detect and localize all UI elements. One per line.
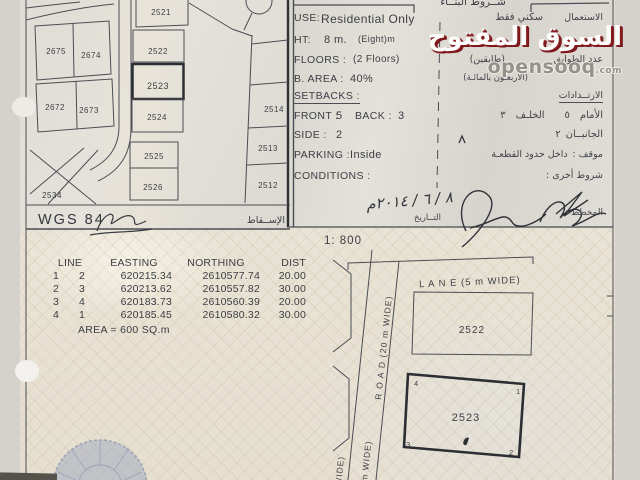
date-label: التــاريخ xyxy=(414,213,441,223)
plot-label-2534: 2534 xyxy=(42,191,62,200)
cell-easting: 620215.34 xyxy=(96,270,172,282)
parking-label: PARKING : xyxy=(294,149,350,161)
setbacks-label: SETBACKS : xyxy=(294,90,360,104)
corner-2: 2 xyxy=(509,448,513,457)
plot-label-2514: 2514 xyxy=(264,105,284,114)
punch-hole-reflection xyxy=(15,360,39,382)
row-setbacks: SETBACKS : الارتــدادات xyxy=(288,90,613,105)
plot-2522 xyxy=(133,30,184,62)
cell-dist: 20.00 xyxy=(260,270,306,282)
cell-from: 2 xyxy=(44,283,68,295)
watermark-domain: opensooq.com xyxy=(428,56,622,78)
krooki-photo: 2521 2522 2523 2524 2525 2526 2534 2675 … xyxy=(0,0,640,480)
detail-plot-2522-label: 2522 xyxy=(459,325,485,336)
conditions-label: CONDITIONS : xyxy=(294,170,371,182)
side-value: 2 xyxy=(336,129,343,141)
projection-label: الإســقاط xyxy=(247,215,285,226)
height-value: 8 m. xyxy=(324,34,347,46)
table-row: 2 3 620213.62 2610557.82 30.00 xyxy=(44,282,306,295)
plot-label-2674: 2674 xyxy=(81,51,101,60)
plot-label-2675: 2675 xyxy=(46,47,66,56)
road-partial-label: m WIDE) xyxy=(359,440,373,480)
header-northing: NORTHING xyxy=(172,257,260,269)
road-label: R O A D (20 m WIDE) xyxy=(373,295,394,400)
datum-label: WGS 84 xyxy=(38,212,105,228)
plot-label-2525: 2525 xyxy=(144,152,164,161)
table-row: 3 4 620183.73 2610560.39 20.00 xyxy=(44,295,306,308)
parking-value: Inside xyxy=(350,149,382,161)
cell-northing: 2610577.74 xyxy=(172,270,260,282)
cell-northing: 2610560.39 xyxy=(172,296,260,308)
cell-to: 3 xyxy=(68,283,96,295)
header-easting: EASTING xyxy=(96,257,172,269)
cell-easting: 620183.73 xyxy=(96,296,172,308)
edge-reflection xyxy=(12,97,36,117)
front-value: 5 xyxy=(336,110,343,122)
cell-easting: 620213.62 xyxy=(96,283,172,295)
header-dist: DIST xyxy=(260,257,306,269)
adjacent-plot-edge xyxy=(333,366,349,451)
plot-label-2521: 2521 xyxy=(151,8,171,17)
cell-easting: 620185.45 xyxy=(96,309,172,321)
back-value: 3 xyxy=(398,110,405,122)
corner-4: 4 xyxy=(414,379,418,388)
built-area-label: B. AREA : xyxy=(294,73,344,85)
area-total: AREA = 600 SQ.m xyxy=(44,324,306,336)
watermark-brand-arabic: السوق المفتوح xyxy=(428,22,622,52)
table-row: 4 1 620185.45 2610580.32 30.00 xyxy=(44,308,306,321)
adjacent-plot-edge xyxy=(333,260,351,352)
plot-label-2512: 2512 xyxy=(258,181,278,190)
row-conditions: CONDITIONS : شروط أخرى : xyxy=(288,170,613,185)
road-partial-label-2: WIDE) xyxy=(333,455,346,480)
planner-label: المخطط : xyxy=(565,208,603,218)
height-label: HT: xyxy=(294,34,311,46)
height-note: (Eight)m xyxy=(358,34,395,44)
plot-label-2673: 2673 xyxy=(79,106,99,115)
detail-plot-2522 xyxy=(412,292,533,355)
side-ar: الجانبــان ٢ xyxy=(555,129,603,140)
plot-label-2524: 2524 xyxy=(147,113,167,122)
built-area-value: 40% xyxy=(350,73,373,85)
header-line: LINE xyxy=(44,257,96,269)
watermark-tld: .com xyxy=(596,66,622,76)
opensooq-watermark: السوق المفتوح opensooq.com xyxy=(428,22,622,78)
road-curve xyxy=(26,2,80,8)
floors-value: (2 Floors) xyxy=(353,54,400,65)
cell-dist: 20.00 xyxy=(260,296,306,308)
cell-to: 4 xyxy=(68,296,96,308)
lane-label: L A N E (5 m WIDE) xyxy=(419,275,521,290)
table-header-row: LINE EASTING NORTHING DIST xyxy=(44,256,306,269)
coordinates-table: LINE EASTING NORTHING DIST 1 2 620215.34… xyxy=(44,256,306,336)
table-row: 1 2 620215.34 2610577.74 20.00 xyxy=(44,269,306,282)
cell-northing: 2610580.32 xyxy=(172,309,260,321)
watermark-brand-latin: opensooq xyxy=(488,56,596,78)
cell-to: 2 xyxy=(68,270,96,282)
plot-label-2526: 2526 xyxy=(143,183,163,192)
cell-northing: 2610557.82 xyxy=(172,283,260,295)
corner-1: 1 xyxy=(516,387,520,396)
cell-to: 1 xyxy=(68,309,96,321)
corner-3: 3 xyxy=(406,440,410,449)
floors-label: FLOORS : xyxy=(294,54,346,66)
plot-label-2672: 2672 xyxy=(45,103,65,112)
hand-mark-detail xyxy=(463,438,469,446)
cell-dist: 30.00 xyxy=(260,309,306,321)
conditions-ar: شروط أخرى : xyxy=(546,170,603,181)
plot-label-2522: 2522 xyxy=(148,47,168,56)
site-plan xyxy=(26,0,288,204)
north-arrow-icon xyxy=(246,0,272,14)
use-value: Residential Only xyxy=(321,12,415,26)
cell-from: 1 xyxy=(44,270,68,282)
row-parking: PARKING : Inside موقف : داخل حدود القطعـ… xyxy=(288,149,613,164)
lane-bracket xyxy=(348,257,533,270)
panel-header: شــروط البنــاء xyxy=(413,0,533,8)
use-label: USE: xyxy=(294,12,320,24)
cell-from: 4 xyxy=(44,309,68,321)
photo-corner-shadow xyxy=(0,472,57,480)
front-label: FRONT : xyxy=(294,110,339,122)
row-front-back: FRONT : 5 BACK : 3 الأمام ٥ الخلـف ٣ xyxy=(288,110,613,125)
front-back-ar: الأمام ٥ الخلـف ٣ xyxy=(500,110,603,121)
detail-plot-2523-label: 2523 xyxy=(452,412,480,424)
plot-label-2513: 2513 xyxy=(258,144,278,153)
blue-stamp xyxy=(53,440,147,480)
cell-dist: 30.00 xyxy=(260,283,306,295)
scale-label: 1: 800 xyxy=(324,235,362,247)
setbacks-ar-label: الارتــدادات xyxy=(559,90,603,103)
plot-label-2523: 2523 xyxy=(147,81,169,91)
cell-from: 3 xyxy=(44,296,68,308)
parking-ar: موقف : داخل حدود القطعـة xyxy=(491,149,603,160)
back-label: BACK : xyxy=(355,110,392,122)
row-side: SIDE : 2 الجانبــان ٢ xyxy=(288,129,613,144)
side-label: SIDE : xyxy=(294,129,327,141)
